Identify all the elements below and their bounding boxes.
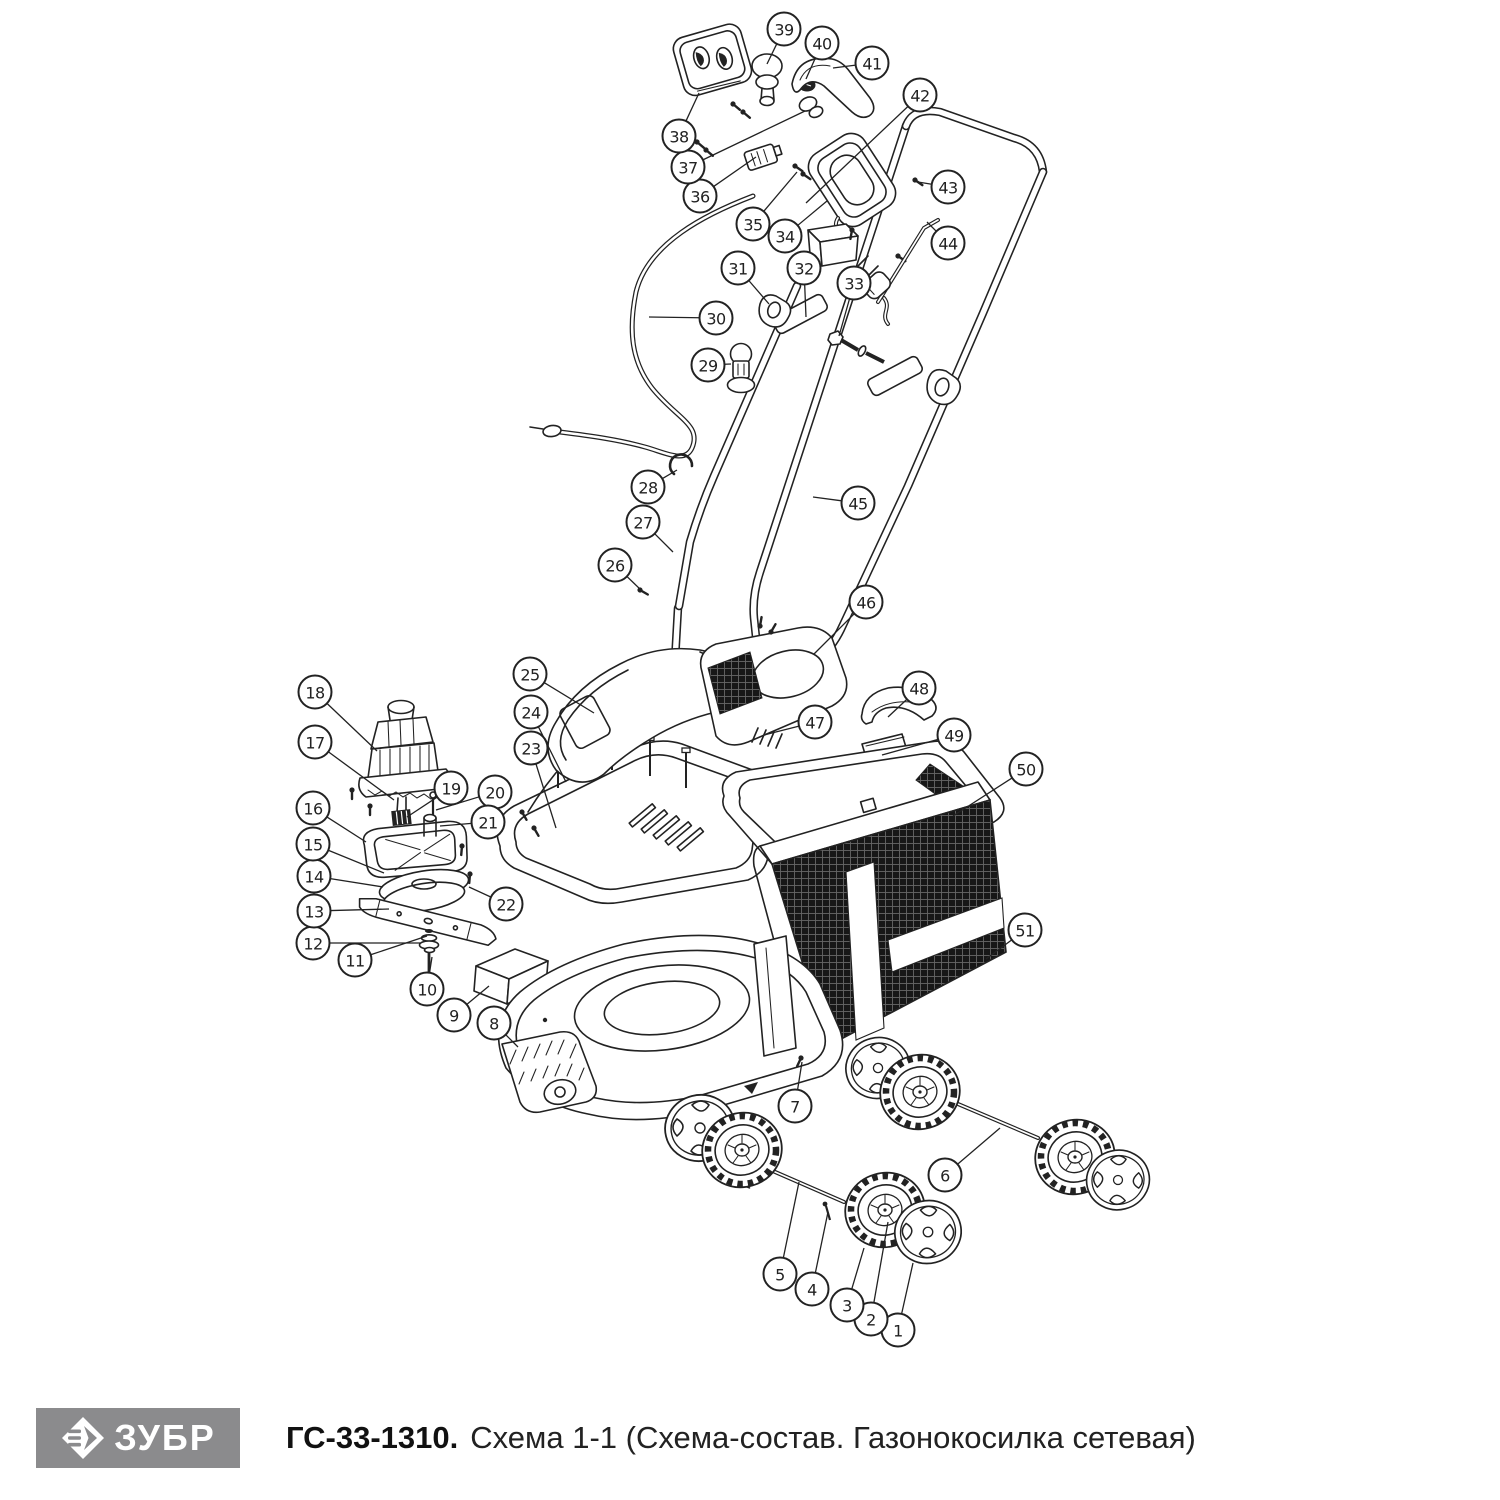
svg-text:20: 20 [485,784,505,803]
svg-text:13: 13 [304,903,323,922]
callout-29: 29 [692,349,732,382]
svg-text:49: 49 [944,727,964,746]
svg-text:7: 7 [790,1098,800,1117]
svg-text:31: 31 [728,260,747,279]
svg-text:23: 23 [521,740,540,759]
callout-45: 45 [813,487,875,520]
svg-text:30: 30 [706,310,726,329]
callout-3: 3 [831,1248,865,1322]
svg-text:19: 19 [441,780,461,799]
svg-text:8: 8 [489,1015,499,1034]
parts-diagram-page: 1234567891011121314151617181920212223242… [0,0,1500,1500]
callout-30: 30 [649,302,733,335]
svg-text:27: 27 [633,514,652,533]
svg-text:32: 32 [794,260,813,279]
svg-text:47: 47 [805,714,824,733]
svg-text:16: 16 [303,800,323,819]
svg-text:10: 10 [417,981,437,1000]
svg-text:24: 24 [521,704,541,723]
callout-43: 43 [918,171,965,204]
brand-name: ЗУБР [114,1420,215,1456]
zubr-logo-icon [60,1415,106,1461]
callout-4: 4 [796,1212,829,1306]
cord-holder [728,344,755,393]
footer-bar: ЗУБР ГС-33-1310. Схема 1-1 (Схема-состав… [0,1383,1500,1500]
callout-31: 31 [722,252,770,305]
svg-text:29: 29 [698,357,718,376]
zubr-logo: ЗУБР [36,1408,240,1468]
svg-text:1: 1 [893,1322,903,1341]
cable-clip [744,142,784,171]
svg-text:6: 6 [940,1167,950,1186]
svg-text:21: 21 [478,814,497,833]
svg-text:33: 33 [844,275,863,294]
svg-text:22: 22 [496,896,515,915]
svg-text:36: 36 [690,188,710,207]
callout-27: 27 [627,506,674,553]
knob-part [752,54,782,106]
svg-text:18: 18 [305,684,325,703]
svg-text:5: 5 [775,1266,785,1285]
svg-text:51: 51 [1015,922,1034,941]
callout-22: 22 [469,887,523,921]
switch-box [670,21,754,98]
diagram-title: ГС-33-1310. Схема 1-1 (Схема-состав. Газ… [286,1408,1196,1468]
svg-text:14: 14 [304,868,324,887]
svg-text:42: 42 [910,87,929,106]
svg-text:4: 4 [807,1281,817,1300]
svg-text:39: 39 [774,21,794,40]
svg-text:17: 17 [305,734,324,753]
handle-clamp-lower [866,355,960,405]
model-number: ГС-33-1310. [286,1420,458,1456]
motor [349,701,450,827]
svg-text:26: 26 [605,557,625,576]
exploded-view-diagram: 1234567891011121314151617181920212223242… [0,0,1500,1500]
svg-text:35: 35 [743,216,762,235]
callout-11: 11 [339,936,428,977]
callout-5: 5 [764,1182,800,1291]
callout-6: 6 [929,1128,1001,1192]
svg-text:45: 45 [848,495,867,514]
svg-text:37: 37 [678,159,697,178]
wheel-pair-rear-left [839,1031,968,1139]
callout-28: 28 [632,470,678,504]
svg-text:9: 9 [449,1007,459,1026]
svg-text:15: 15 [303,836,322,855]
svg-text:28: 28 [638,479,658,498]
svg-text:34: 34 [775,228,795,247]
svg-text:25: 25 [520,666,539,685]
svg-text:2: 2 [866,1311,876,1330]
svg-text:44: 44 [938,235,958,254]
wheel-pair-front-left [658,1088,791,1197]
callout-44: 44 [927,222,965,260]
svg-text:43: 43 [938,179,957,198]
svg-text:48: 48 [909,680,929,699]
callout-10: 10 [411,957,444,1006]
svg-text:40: 40 [812,35,832,54]
svg-text:12: 12 [303,935,322,954]
svg-text:46: 46 [856,594,876,613]
scheme-name: Схема 1-1 (Схема-состав. Газонокосилка с… [470,1420,1196,1456]
svg-text:41: 41 [862,55,881,74]
svg-text:38: 38 [669,128,689,147]
switch-housing [802,127,901,266]
svg-text:50: 50 [1016,761,1036,780]
svg-text:3: 3 [842,1297,852,1316]
callout-26: 26 [599,549,642,591]
callout-46: 46 [814,586,883,655]
callout-33: 33 [838,267,871,337]
wheel-pair-rear-exploded [1026,1110,1155,1216]
callout-38: 38 [663,93,700,153]
callout-1: 1 [882,1263,915,1347]
svg-text:11: 11 [345,952,364,971]
